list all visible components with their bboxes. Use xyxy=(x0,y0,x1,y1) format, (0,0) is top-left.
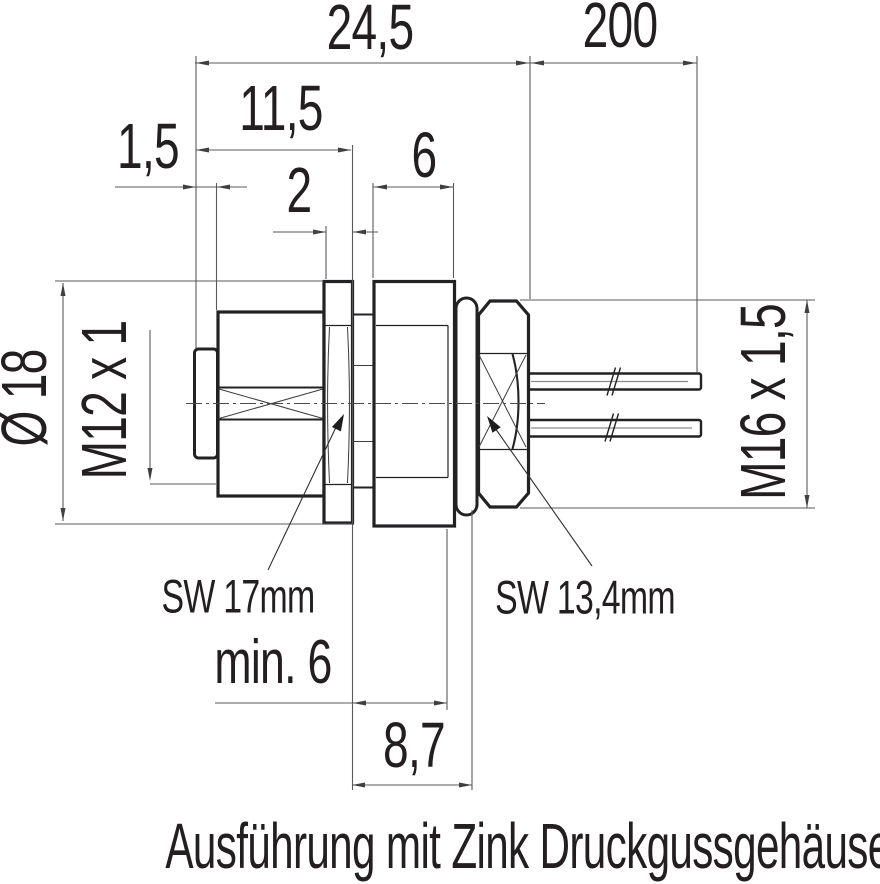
dim-overall-length-label: 24,5 xyxy=(327,0,414,59)
dim-flange-width-label: 2 xyxy=(287,158,312,222)
hex-flange xyxy=(324,282,353,524)
caption: Ausführung mit Zink Druckgussgehäuse xyxy=(165,814,880,878)
dim-nut-length-label: 8,7 xyxy=(383,713,445,777)
front-thread-label: M12 x 1 xyxy=(72,321,136,480)
dim-thread-length-label: 6 xyxy=(412,123,437,187)
connector-part xyxy=(186,282,701,527)
dim-diameter-label: Ø 18 xyxy=(0,349,56,446)
thread-relief xyxy=(352,315,374,488)
wrench-size-flange-label: SW 17mm xyxy=(162,573,315,620)
dim-min-panel-label: min. 6 xyxy=(214,632,331,694)
wrench-size-nut-label: SW 13,4mm xyxy=(495,574,675,621)
dim-head-length-label: 11,5 xyxy=(239,76,322,140)
dim-wire-length-label: 200 xyxy=(583,0,658,57)
dim-rim-width-label: 1,5 xyxy=(117,114,179,178)
drawing-canvas: 24,5 200 11,5 1,5 2 6 min. 6 8,7 SW 17mm… xyxy=(0,0,880,884)
o-ring xyxy=(456,298,477,515)
mount-thread-label: M16 x 1,5 xyxy=(731,304,795,500)
